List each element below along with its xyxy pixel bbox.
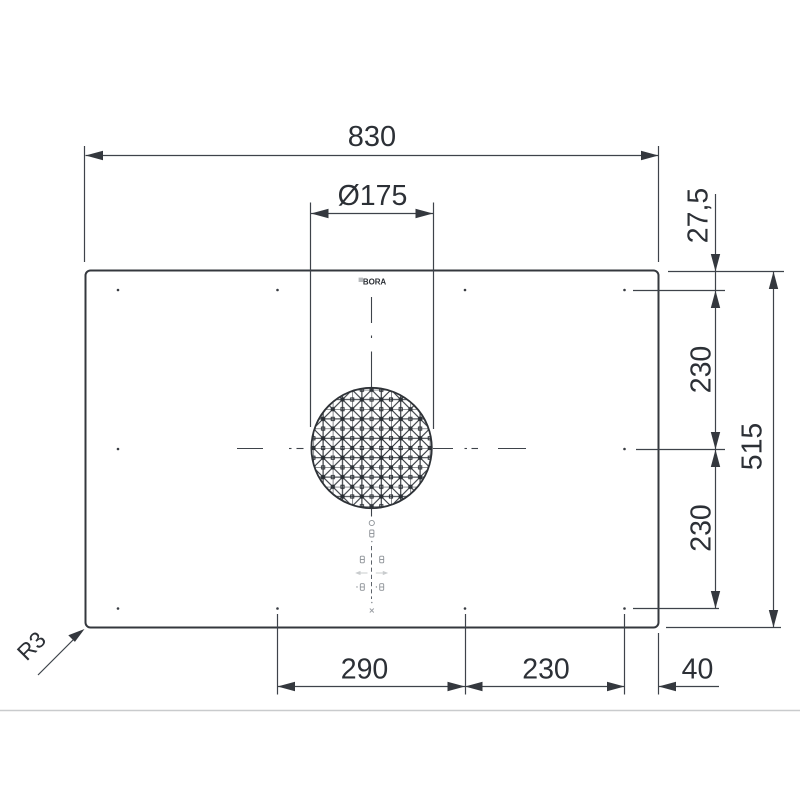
svg-text:230: 230 bbox=[686, 346, 718, 394]
svg-text:40: 40 bbox=[682, 654, 714, 686]
svg-text:830: 830 bbox=[348, 121, 396, 153]
svg-text:BORA: BORA bbox=[363, 277, 386, 286]
svg-text:27,5: 27,5 bbox=[683, 188, 715, 243]
svg-text:R3: R3 bbox=[12, 626, 51, 665]
svg-text:515: 515 bbox=[737, 423, 769, 471]
svg-text:290: 290 bbox=[341, 654, 389, 686]
svg-text:Ø175: Ø175 bbox=[338, 180, 408, 212]
svg-text:230: 230 bbox=[522, 654, 570, 686]
svg-text:230: 230 bbox=[686, 504, 718, 552]
